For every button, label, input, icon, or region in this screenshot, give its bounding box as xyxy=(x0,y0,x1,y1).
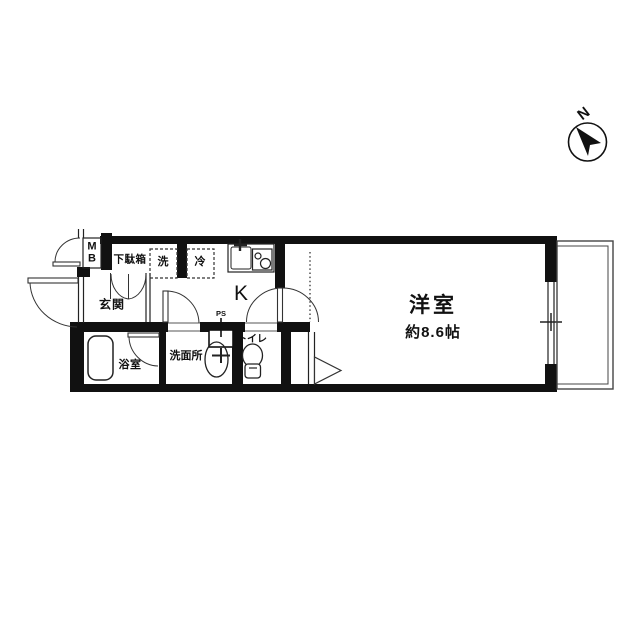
north-compass-icon xyxy=(569,123,607,161)
bathtub-icon xyxy=(88,336,113,380)
entrance-label: 玄関 xyxy=(99,299,125,312)
room-door xyxy=(247,288,319,322)
pipe-space-label: PS xyxy=(216,310,226,318)
floor-plan-drawing xyxy=(0,0,639,640)
toilet-label: トイレ xyxy=(237,335,267,346)
shoe-cabinet-doors xyxy=(111,273,147,299)
balcony xyxy=(557,241,613,389)
kitchen-label: K xyxy=(234,283,248,305)
toilet-icon xyxy=(243,344,263,378)
fridge-label: 冷 xyxy=(195,257,206,269)
closet-folding-door xyxy=(315,357,342,384)
stove-icon xyxy=(253,249,273,270)
bathroom-label: 浴室 xyxy=(119,360,142,372)
kitchen-counter xyxy=(228,239,274,272)
western-room-label: 洋室 xyxy=(409,295,457,317)
washroom-door xyxy=(163,291,199,323)
entrance-door xyxy=(28,278,78,327)
floor-plan-page: MB 下駄箱 洗 冷 K PS 玄関 浴室 洗面所 トイレ 洋室 約8.6帖 N xyxy=(0,0,639,640)
window-icon xyxy=(540,282,562,364)
washer-label: 洗 xyxy=(158,257,169,269)
washroom-label: 洗面所 xyxy=(170,351,203,363)
meter-box-door xyxy=(53,238,80,266)
room-size-label: 約8.6帖 xyxy=(405,325,461,341)
shoe-cabinet-label: 下駄箱 xyxy=(114,254,147,265)
meter-box-label: MB xyxy=(87,241,96,264)
